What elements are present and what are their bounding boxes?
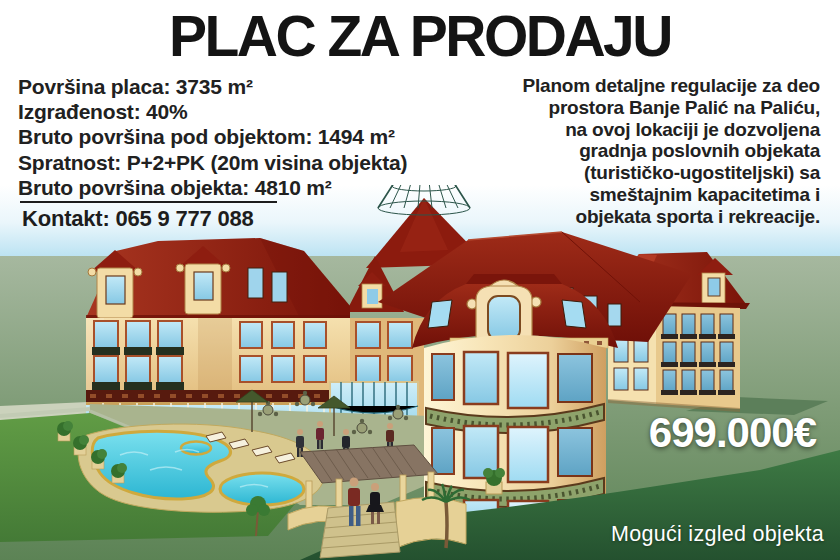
contact-line: Kontakt: 065 9 777 088 bbox=[22, 206, 254, 232]
flyer: PLAC ZA PRODAJU Površina placa: 3735 m² … bbox=[0, 0, 840, 560]
description-line: smeštajnim kapacitetima i bbox=[523, 184, 821, 206]
left-wing bbox=[86, 238, 350, 432]
contact-divider bbox=[20, 201, 277, 203]
description-paragraph: Planom detaljne regulacije za deo prosto… bbox=[523, 75, 821, 228]
detail-line: Bruto površina objekta: 4810 m² bbox=[18, 175, 438, 200]
description-line: objekata sporta i rekreacije. bbox=[523, 206, 821, 228]
spa-pool bbox=[181, 442, 211, 455]
image-caption: Mogući izgled objekta bbox=[611, 522, 824, 547]
building-rendering bbox=[0, 185, 840, 560]
detail-line: Bruto površina pod objektom: 1494 m² bbox=[18, 124, 438, 149]
property-details: Površina placa: 3735 m² Izgrađenost: 40%… bbox=[18, 74, 438, 200]
description-line: gradnja poslovnih objekata bbox=[523, 140, 821, 162]
detail-line: Spratnost: P+2+PK (20m visina objekta) bbox=[18, 150, 438, 175]
description-line: Planom detaljne regulacije za deo bbox=[523, 75, 821, 97]
detail-line: Površina placa: 3735 m² bbox=[18, 74, 438, 99]
detail-line: Izgrađenost: 40% bbox=[18, 99, 438, 124]
page-title: PLAC ZA PRODAJU bbox=[0, 7, 840, 65]
description-line: (turističko-ugostiteljski) sa bbox=[523, 162, 821, 184]
description-line: prostora Banje Palić na Paliću, bbox=[523, 97, 821, 119]
description-line: na ovoj lokaciji je dozvoljena bbox=[523, 119, 821, 141]
price-label: 699.000€ bbox=[649, 409, 816, 457]
